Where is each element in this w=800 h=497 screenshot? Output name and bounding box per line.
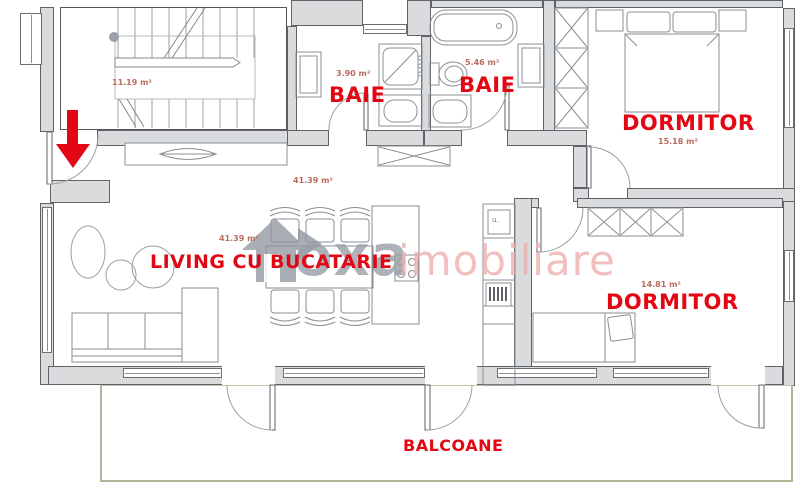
wall-segment	[97, 130, 288, 146]
wardrobe-bedroom-side	[588, 208, 683, 236]
floor-plan: oxa imobiliare 11.19 m² 3.90 m² BAIE 5.4…	[0, 0, 800, 497]
window	[363, 24, 407, 34]
window	[784, 28, 794, 128]
wall-segment	[555, 0, 783, 8]
wall-segment	[287, 26, 297, 146]
wall-segment	[507, 130, 587, 146]
bath-large-area-label: 5.46 m²	[465, 58, 499, 67]
bedroom-side-furniture	[533, 208, 635, 362]
wall-segment	[573, 146, 587, 188]
bedroom-side-name: DORMITOR	[606, 290, 739, 314]
bedroom-top-furniture	[587, 10, 746, 188]
window	[613, 368, 709, 378]
bedroom-side-area-label: 14.81 m²	[641, 280, 681, 289]
door-opening	[222, 366, 275, 385]
bath-large-name: BAIE	[459, 73, 515, 97]
entrance-arrow-head	[56, 144, 90, 168]
wall-segment	[424, 130, 462, 146]
bedroom-top-area-label: 15.18 m²	[658, 137, 698, 146]
wall-segment	[514, 198, 532, 385]
balcony-name: BALCOANE	[403, 436, 503, 455]
door-opening	[425, 366, 477, 385]
wall-segment	[291, 0, 363, 26]
wall-segment	[577, 198, 783, 208]
balcony-outline	[100, 385, 793, 482]
wall-segment	[50, 180, 110, 203]
window	[20, 13, 42, 65]
living-name: LIVING CU BUCATARIE	[150, 251, 393, 273]
entrance-arrow	[67, 110, 78, 146]
wall-segment	[407, 0, 431, 36]
window	[123, 368, 222, 378]
wardrobe-bedroom-top	[555, 8, 588, 128]
bath-small-name: BAIE	[329, 83, 385, 107]
window	[42, 207, 52, 353]
living-area-label-upper: 41.39 m²	[293, 176, 333, 185]
living-area-label-center: 41.39 m²	[219, 234, 259, 243]
door-opening	[711, 366, 765, 385]
bath-small-area-label: 3.90 m²	[336, 69, 370, 78]
bath-large-fixtures	[429, 10, 544, 130]
hall-closet	[378, 146, 450, 166]
window	[497, 368, 597, 378]
sideboard	[125, 143, 287, 165]
bedroom-top-name: DORMITOR	[622, 111, 755, 135]
wall-segment	[366, 130, 424, 146]
watermark-suffix: imobiliare	[398, 236, 616, 285]
sofa	[72, 288, 218, 362]
stair-room	[60, 7, 287, 130]
stairs-area-label: 11.19 m²	[112, 78, 152, 87]
kitchen-cabinet-label: u.	[492, 216, 499, 224]
wall-segment	[431, 0, 543, 8]
wall-segment	[543, 0, 555, 146]
wall-segment	[40, 7, 54, 132]
wall-segment	[287, 130, 329, 146]
window	[784, 250, 794, 302]
window	[283, 368, 425, 378]
